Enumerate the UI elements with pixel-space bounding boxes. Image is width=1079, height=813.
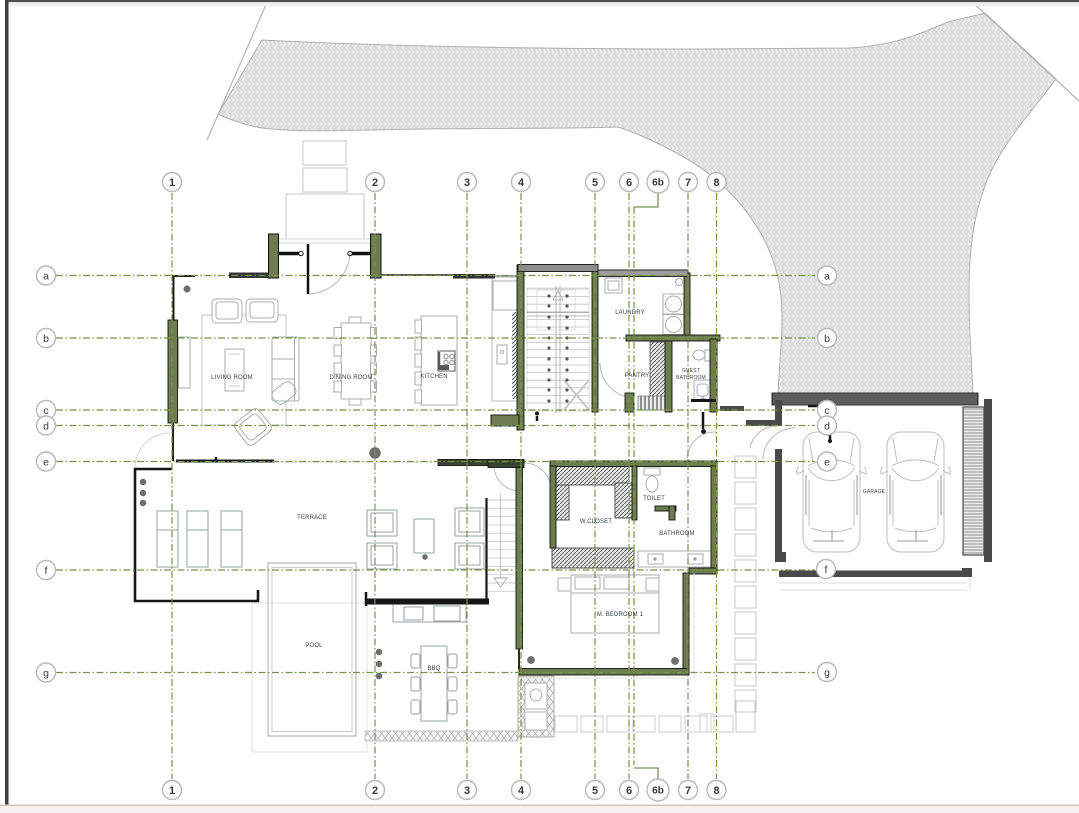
svg-text:e: e (824, 456, 830, 468)
svg-text:a: a (824, 270, 830, 282)
svg-text:TOILET: TOILET (643, 496, 665, 502)
svg-text:d: d (824, 420, 830, 432)
svg-text:b: b (43, 333, 49, 345)
svg-text:GARAGE: GARAGE (863, 489, 886, 495)
svg-text:PANTRY: PANTRY (625, 373, 650, 379)
svg-text:8: 8 (713, 177, 719, 189)
svg-text:2: 2 (372, 785, 378, 797)
svg-text:1: 1 (169, 177, 175, 189)
svg-text:3: 3 (464, 177, 470, 189)
svg-text:4: 4 (518, 785, 525, 797)
svg-text:e: e (43, 456, 49, 468)
svg-text:g: g (43, 667, 49, 679)
svg-text:f: f (45, 565, 48, 577)
svg-text:c: c (43, 405, 48, 417)
svg-text:d: d (43, 420, 49, 432)
svg-text:M. BEDROOM 1: M. BEDROOM 1 (597, 612, 644, 618)
svg-text:GUEST: GUEST (682, 368, 700, 374)
svg-text:POOL: POOL (305, 643, 323, 649)
svg-text:LAUNDRY: LAUNDRY (615, 310, 645, 316)
svg-text:6: 6 (626, 177, 632, 189)
svg-text:6b: 6b (652, 178, 664, 189)
svg-text:1: 1 (169, 785, 175, 797)
svg-text:6: 6 (626, 785, 632, 797)
svg-text:KITCHEN: KITCHEN (420, 374, 447, 380)
svg-text:f: f (825, 564, 828, 576)
svg-text:4: 4 (518, 177, 525, 189)
svg-text:a: a (43, 270, 49, 282)
svg-text:5: 5 (592, 177, 598, 189)
svg-text:3: 3 (464, 785, 470, 797)
svg-text:BBQ: BBQ (427, 666, 440, 672)
svg-text:LIVING ROOM: LIVING ROOM (211, 375, 253, 381)
svg-text:c: c (824, 405, 829, 417)
svg-text:W.CLOSET: W.CLOSET (580, 519, 612, 525)
svg-text:5: 5 (592, 785, 598, 797)
svg-text:6b: 6b (652, 786, 664, 797)
svg-text:b: b (824, 333, 830, 345)
svg-text:8: 8 (713, 785, 719, 797)
svg-text:7: 7 (685, 177, 691, 189)
svg-text:BATHROOM: BATHROOM (676, 375, 706, 381)
svg-text:7: 7 (685, 785, 691, 797)
svg-text:2: 2 (372, 177, 378, 189)
svg-text:BATHROOM: BATHROOM (659, 531, 694, 537)
svg-text:g: g (824, 667, 830, 679)
svg-text:TERRACE: TERRACE (297, 515, 327, 521)
svg-text:DINING ROOM: DINING ROOM (330, 375, 373, 381)
